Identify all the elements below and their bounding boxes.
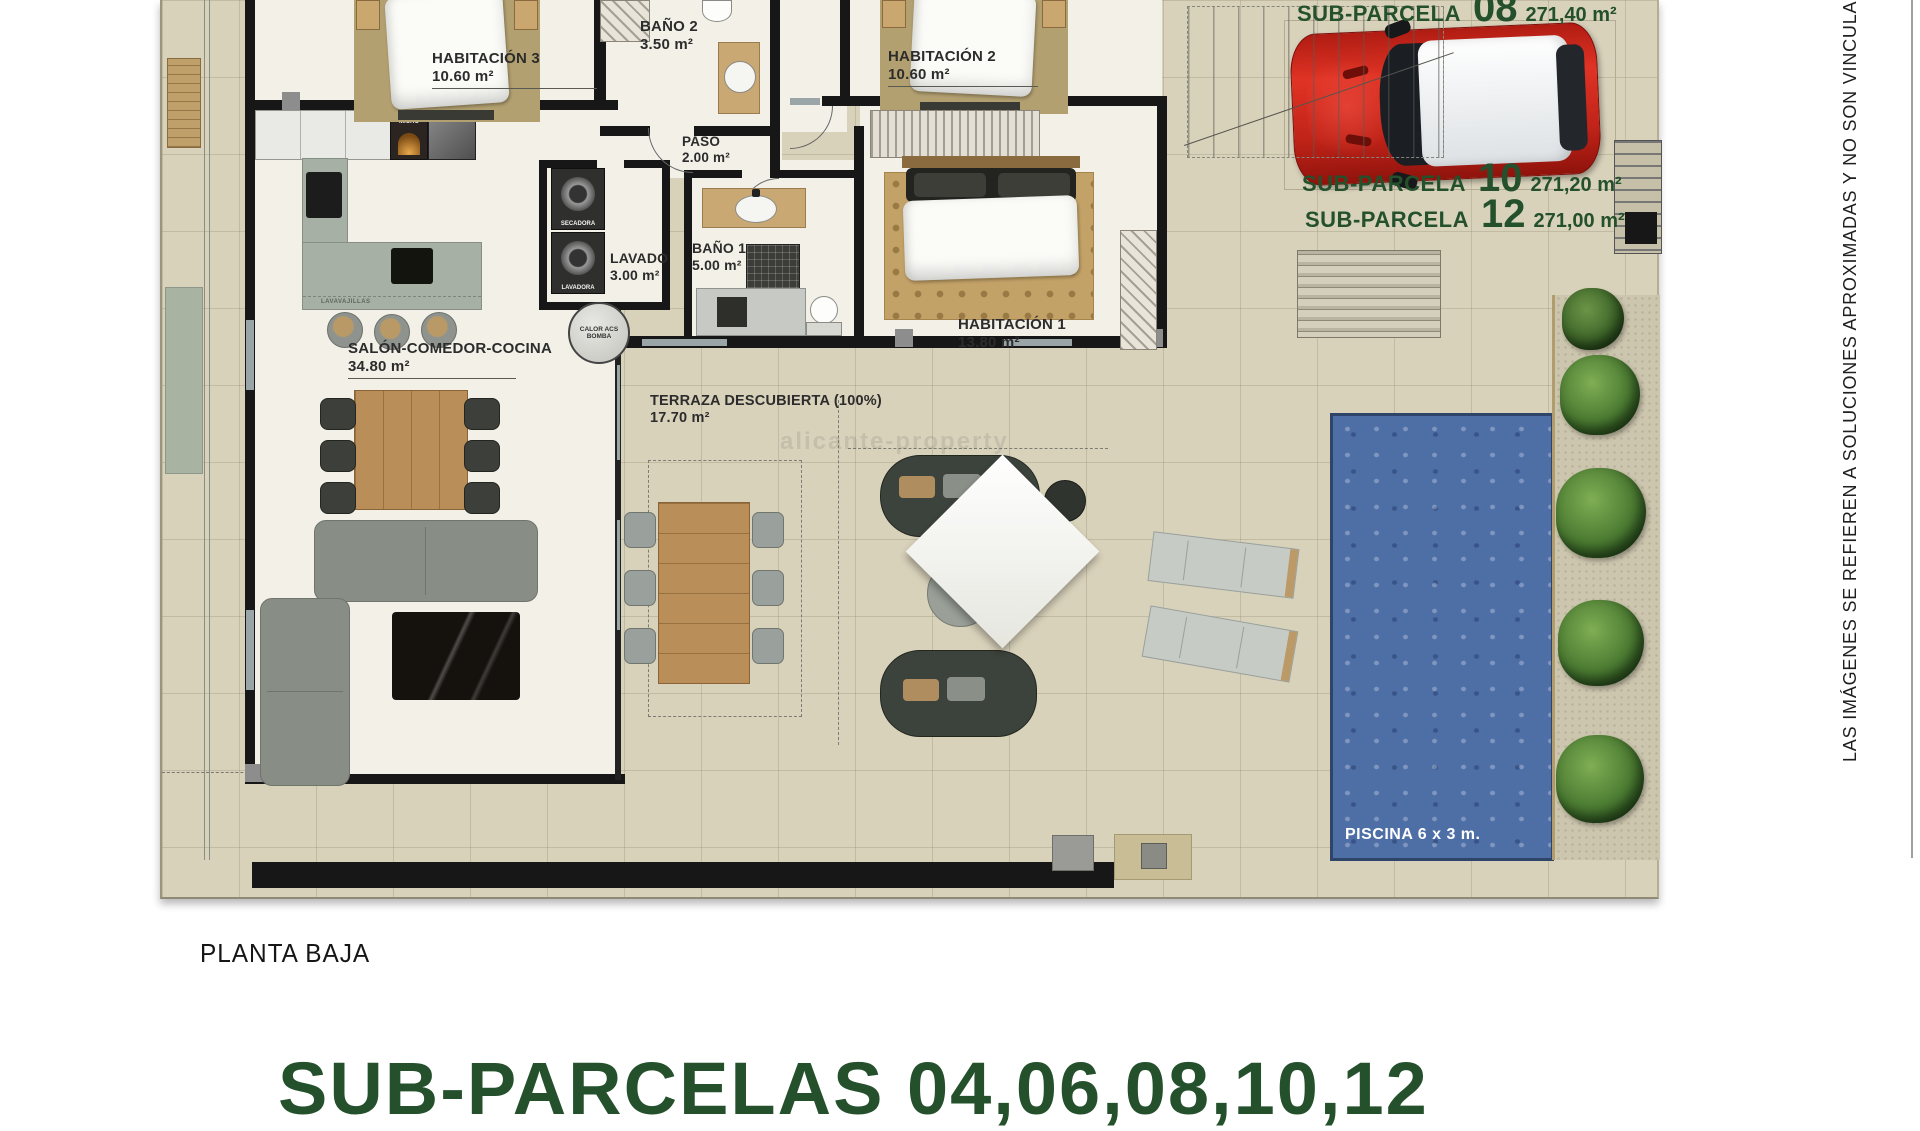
bottom-title: SUB-PARCELAS 04,06,08,10,12 (278, 1046, 1429, 1131)
outdoor-table-icon (658, 502, 750, 684)
floor-plan-page: { "plan": { "floor_label": "PLANTA BAJA"… (0, 0, 1920, 1080)
wall (600, 126, 650, 136)
bed1-area (902, 156, 1080, 278)
outdoor-shower-icon (1052, 835, 1094, 871)
vanity-icon (718, 42, 760, 114)
toilet-icon (702, 0, 732, 22)
coffee-table-icon (392, 612, 520, 700)
page-rule-line (1911, 0, 1913, 858)
window (246, 610, 254, 690)
door-glass (790, 98, 820, 105)
wall-block (1625, 212, 1657, 244)
wall (684, 170, 692, 338)
terrace-edge-wall (252, 862, 1114, 888)
room-label-lavado: LAVADO3.00 m² (610, 250, 668, 283)
outdoor-chair-icon (624, 628, 656, 664)
site-plan: HORNO MICRO FRIGORÍFICO LAVAVAJILLAS (160, 0, 1659, 899)
room-label-salon: SALÓN-COMEDOR-COCINA34.80 m² (348, 340, 552, 379)
chair-icon (464, 398, 500, 430)
planter (165, 287, 203, 474)
bed-icon (903, 195, 1080, 281)
room-label-bano2: BAÑO 23.50 m² (640, 18, 698, 53)
wall (774, 170, 854, 178)
outdoor-mat (1114, 834, 1192, 880)
water-heater-icon: CALOR ACS BOMBA (568, 302, 630, 364)
wall (770, 0, 780, 140)
pillar (282, 92, 300, 110)
outdoor-chair-icon (624, 512, 656, 548)
rear-window (1556, 44, 1589, 151)
wall (539, 160, 597, 168)
wardrobe-icon (1120, 230, 1157, 350)
vanity-icon (702, 188, 806, 228)
floor-title: PLANTA BAJA (200, 938, 370, 969)
wall (539, 160, 547, 310)
dining-table-icon (354, 390, 468, 510)
wall (1157, 96, 1167, 348)
room-label-paso: PASO2.00 m² (682, 134, 730, 166)
parcel-label-12: SUB-PARCELA12271,00 m² (1305, 192, 1625, 237)
room-label-terraza: TERRAZA DESCUBIERTA (100%)17.70 m² (650, 393, 882, 427)
sun-lounger-icon (1148, 531, 1300, 599)
window (617, 365, 620, 460)
outdoor-chair-icon (624, 570, 656, 606)
pool-label: PISCINA 6 x 3 m. (1345, 826, 1480, 844)
room-label-habitacion3: HABITACIÓN 310.60 m² (432, 50, 597, 89)
pergola-slats (1297, 250, 1441, 338)
washer-icon: LAVADORA (551, 232, 605, 294)
wood-deck (167, 58, 201, 148)
chair-icon (464, 440, 500, 472)
outdoor-chair-icon (752, 512, 784, 548)
chair-icon (320, 482, 356, 514)
wall (854, 126, 864, 338)
dishwasher-label: LAVAVAJILLAS (321, 299, 371, 305)
chair-icon (320, 398, 356, 430)
window (246, 320, 254, 390)
shower-tray-icon (696, 288, 806, 336)
outdoor-chair-icon (752, 570, 784, 606)
chair-icon (464, 482, 500, 514)
boundary-dashed (162, 772, 258, 773)
parcel-label-08: SUB-PARCELA08271,40 m² (1297, 0, 1617, 31)
outdoor-sofa-icon (880, 650, 1037, 737)
watermark: alicante-property (780, 428, 1009, 456)
wall (662, 168, 670, 310)
outdoor-chair-icon (752, 628, 784, 664)
room-label-habitacion2: HABITACIÓN 210.60 m² (888, 48, 1038, 87)
wardrobe-icon (870, 110, 1040, 158)
pool: PISCINA 6 x 3 m. (1330, 413, 1554, 861)
sofa-icon (260, 598, 350, 786)
chair-icon (320, 440, 356, 472)
sofa-icon (314, 520, 538, 602)
toilet-icon (810, 296, 838, 324)
sliding-door-glass (642, 339, 727, 346)
room-label-bano1: BAÑO 15.00 m² (692, 240, 746, 273)
plot-boundary-line (204, 0, 210, 860)
door-arc (790, 106, 833, 149)
dryer-icon: SECADORA (551, 168, 605, 230)
wall (840, 0, 850, 100)
sink-icon (391, 248, 433, 284)
sun-lounger-icon (1142, 605, 1299, 682)
room-label-habitacion1: HABITACIÓN 113.80 m² (958, 316, 1066, 351)
toilet-tank (806, 322, 842, 336)
window (617, 520, 620, 630)
cooktop-icon (306, 172, 342, 218)
kitchen-island: LAVAVAJILLAS (302, 242, 482, 310)
pillar (895, 329, 913, 347)
